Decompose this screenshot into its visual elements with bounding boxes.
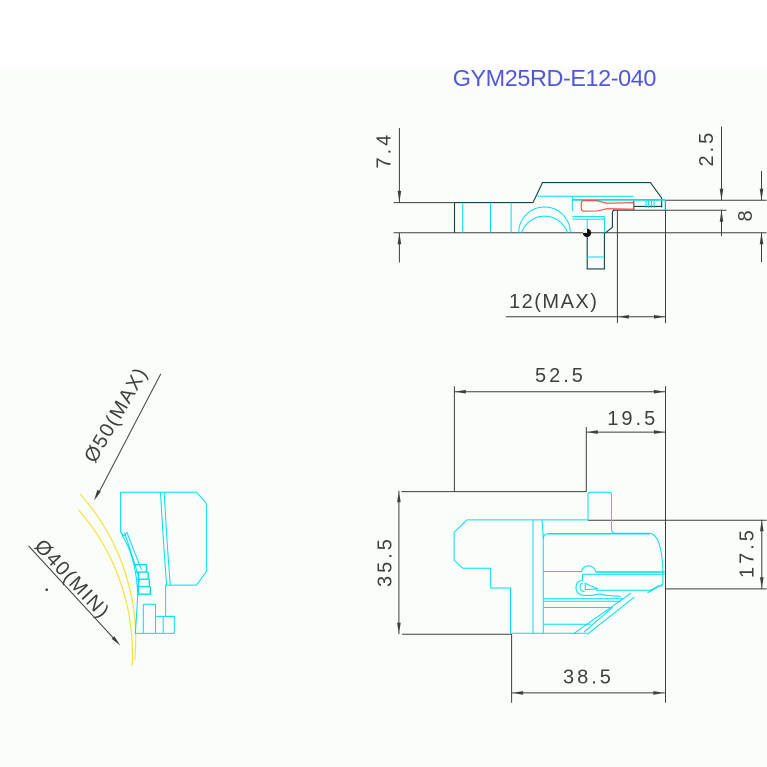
svg-text:8: 8 [735,207,757,221]
svg-text:12(MAX): 12(MAX) [509,291,598,313]
svg-text:19.5: 19.5 [607,408,658,430]
svg-text:38.5: 38.5 [563,667,614,689]
svg-text:17.5: 17.5 [737,527,759,578]
svg-text:GYM25RD-E12-040: GYM25RD-E12-040 [453,65,657,91]
svg-text:52.5: 52.5 [535,365,586,387]
svg-text:35.5: 35.5 [375,536,397,587]
svg-text:2.5: 2.5 [696,130,718,167]
svg-text:7.4: 7.4 [374,132,396,169]
